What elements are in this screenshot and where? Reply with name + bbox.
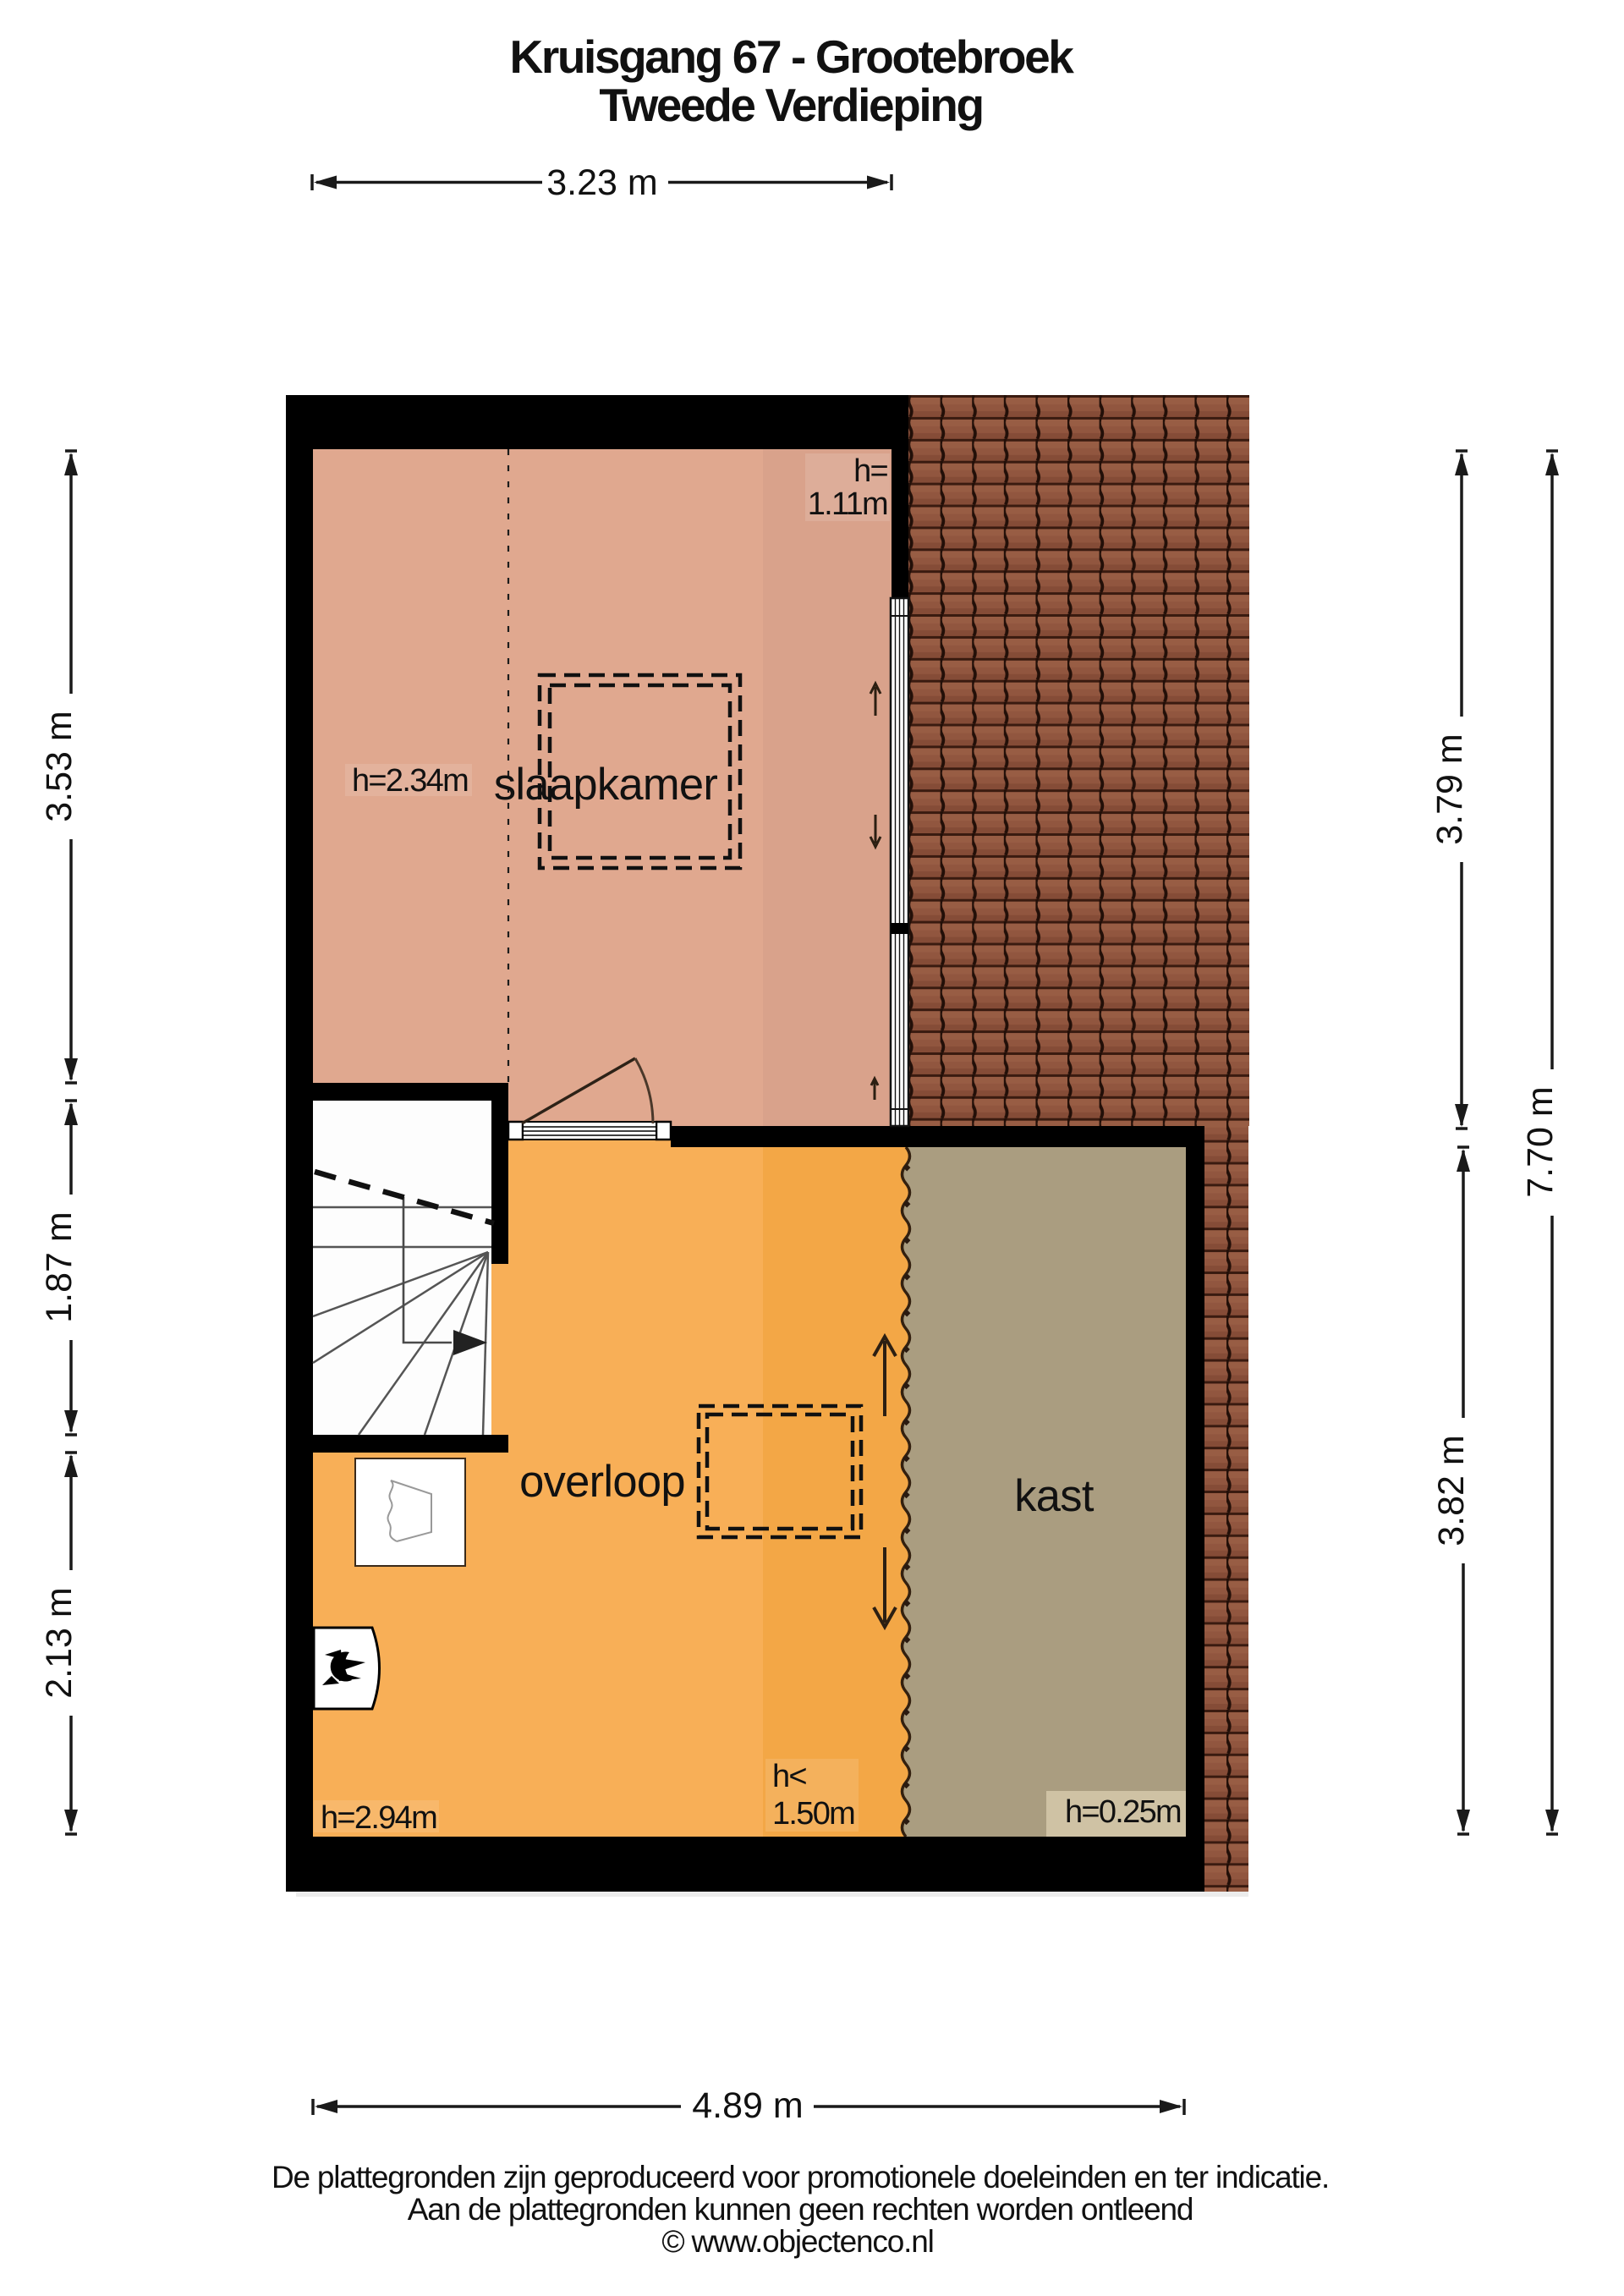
svg-text:slaapkamer: slaapkamer — [494, 760, 718, 810]
svg-text:1.87 m: 1.87 m — [39, 1211, 80, 1322]
svg-text:kast: kast — [1014, 1471, 1095, 1521]
svg-text:1.50m: 1.50m — [772, 1796, 854, 1832]
svg-text:Tweede Verdieping: Tweede Verdieping — [599, 79, 982, 131]
svg-text:De plattegronden zijn geproduc: De plattegronden zijn geproduceerd voor … — [272, 2160, 1329, 2194]
svg-text:Kruisgang 67 - Grootebroek: Kruisgang 67 - Grootebroek — [510, 30, 1075, 83]
svg-text:3.53 m: 3.53 m — [39, 711, 80, 821]
svg-text:1.11m: 1.11m — [808, 486, 887, 522]
svg-text:Aan de plattegronden kunnen ge: Aan de plattegronden kunnen geen rechten… — [408, 2192, 1193, 2227]
svg-text:h=: h= — [853, 453, 887, 489]
svg-text:h=2.34m: h=2.34m — [352, 763, 468, 799]
svg-text:3.82 m: 3.82 m — [1431, 1435, 1472, 1546]
svg-text:h<: h< — [772, 1759, 806, 1794]
svg-text:7.70 m: 7.70 m — [1520, 1086, 1561, 1197]
svg-text:3.23 m: 3.23 m — [546, 162, 657, 203]
svg-text:4.89 m: 4.89 m — [692, 2085, 803, 2126]
svg-text:h=0.25m: h=0.25m — [1065, 1794, 1181, 1830]
svg-text:overloop: overloop — [519, 1457, 685, 1507]
svg-text:h=2.94m: h=2.94m — [321, 1800, 436, 1836]
svg-text:2.13 m: 2.13 m — [39, 1587, 80, 1698]
svg-text:3.79 m: 3.79 m — [1429, 733, 1470, 844]
svg-text:© www.objectenco.nl: © www.objectenco.nl — [661, 2224, 933, 2259]
